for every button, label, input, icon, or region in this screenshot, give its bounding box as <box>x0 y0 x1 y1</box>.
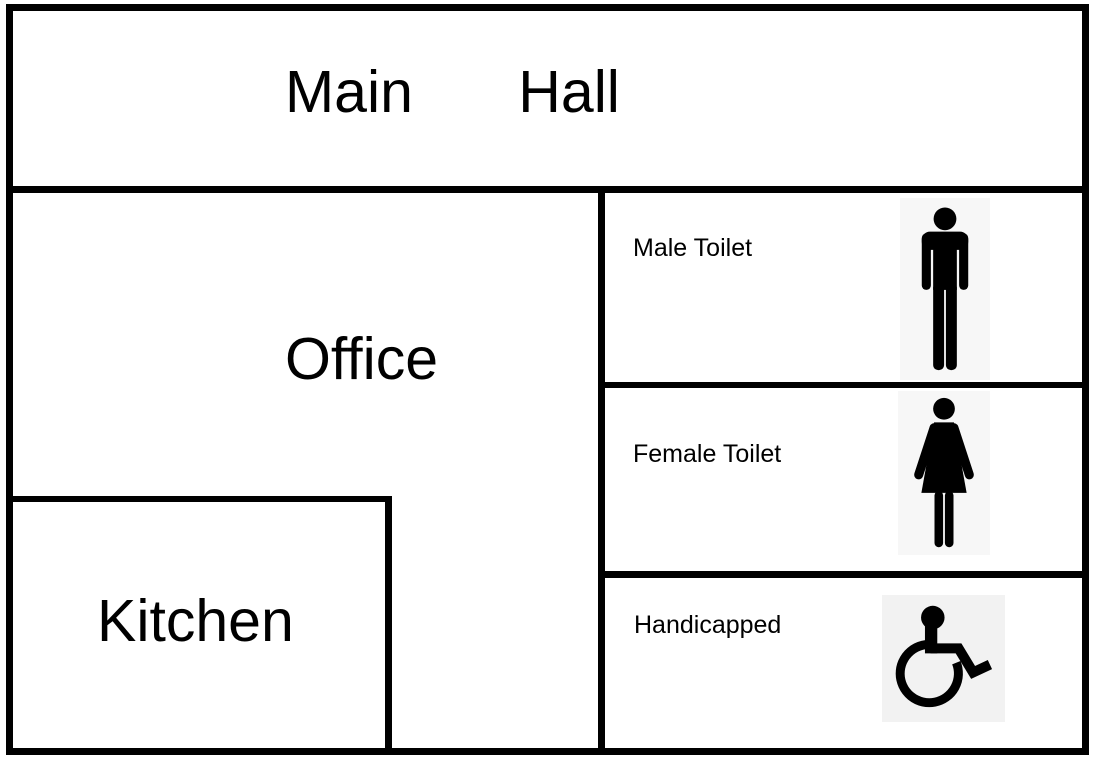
female-figure-icon <box>898 391 990 555</box>
wall-kitchen-right <box>385 496 392 750</box>
room-label-handicapped: Handicapped <box>634 613 781 638</box>
floor-plan: Main Hall Office Kitchen Male Toilet Fem… <box>0 0 1096 762</box>
room-label-kitchen: Kitchen <box>97 592 294 651</box>
wall-male-female-divider <box>605 382 1083 388</box>
wheelchair-icon <box>882 595 1005 722</box>
room-label-main-hall: Main Hall <box>285 63 620 122</box>
male-figure-icon <box>900 198 990 380</box>
room-label-office: Office <box>285 330 438 389</box>
room-label-female-toilet: Female Toilet <box>633 442 781 467</box>
wall-kitchen-top <box>10 496 390 502</box>
wall-main-hall-bottom <box>8 186 1088 193</box>
wall-office-toilet-divider <box>598 190 605 750</box>
wall-female-handicapped-divider <box>605 571 1083 578</box>
room-label-male-toilet: Male Toilet <box>633 236 752 261</box>
